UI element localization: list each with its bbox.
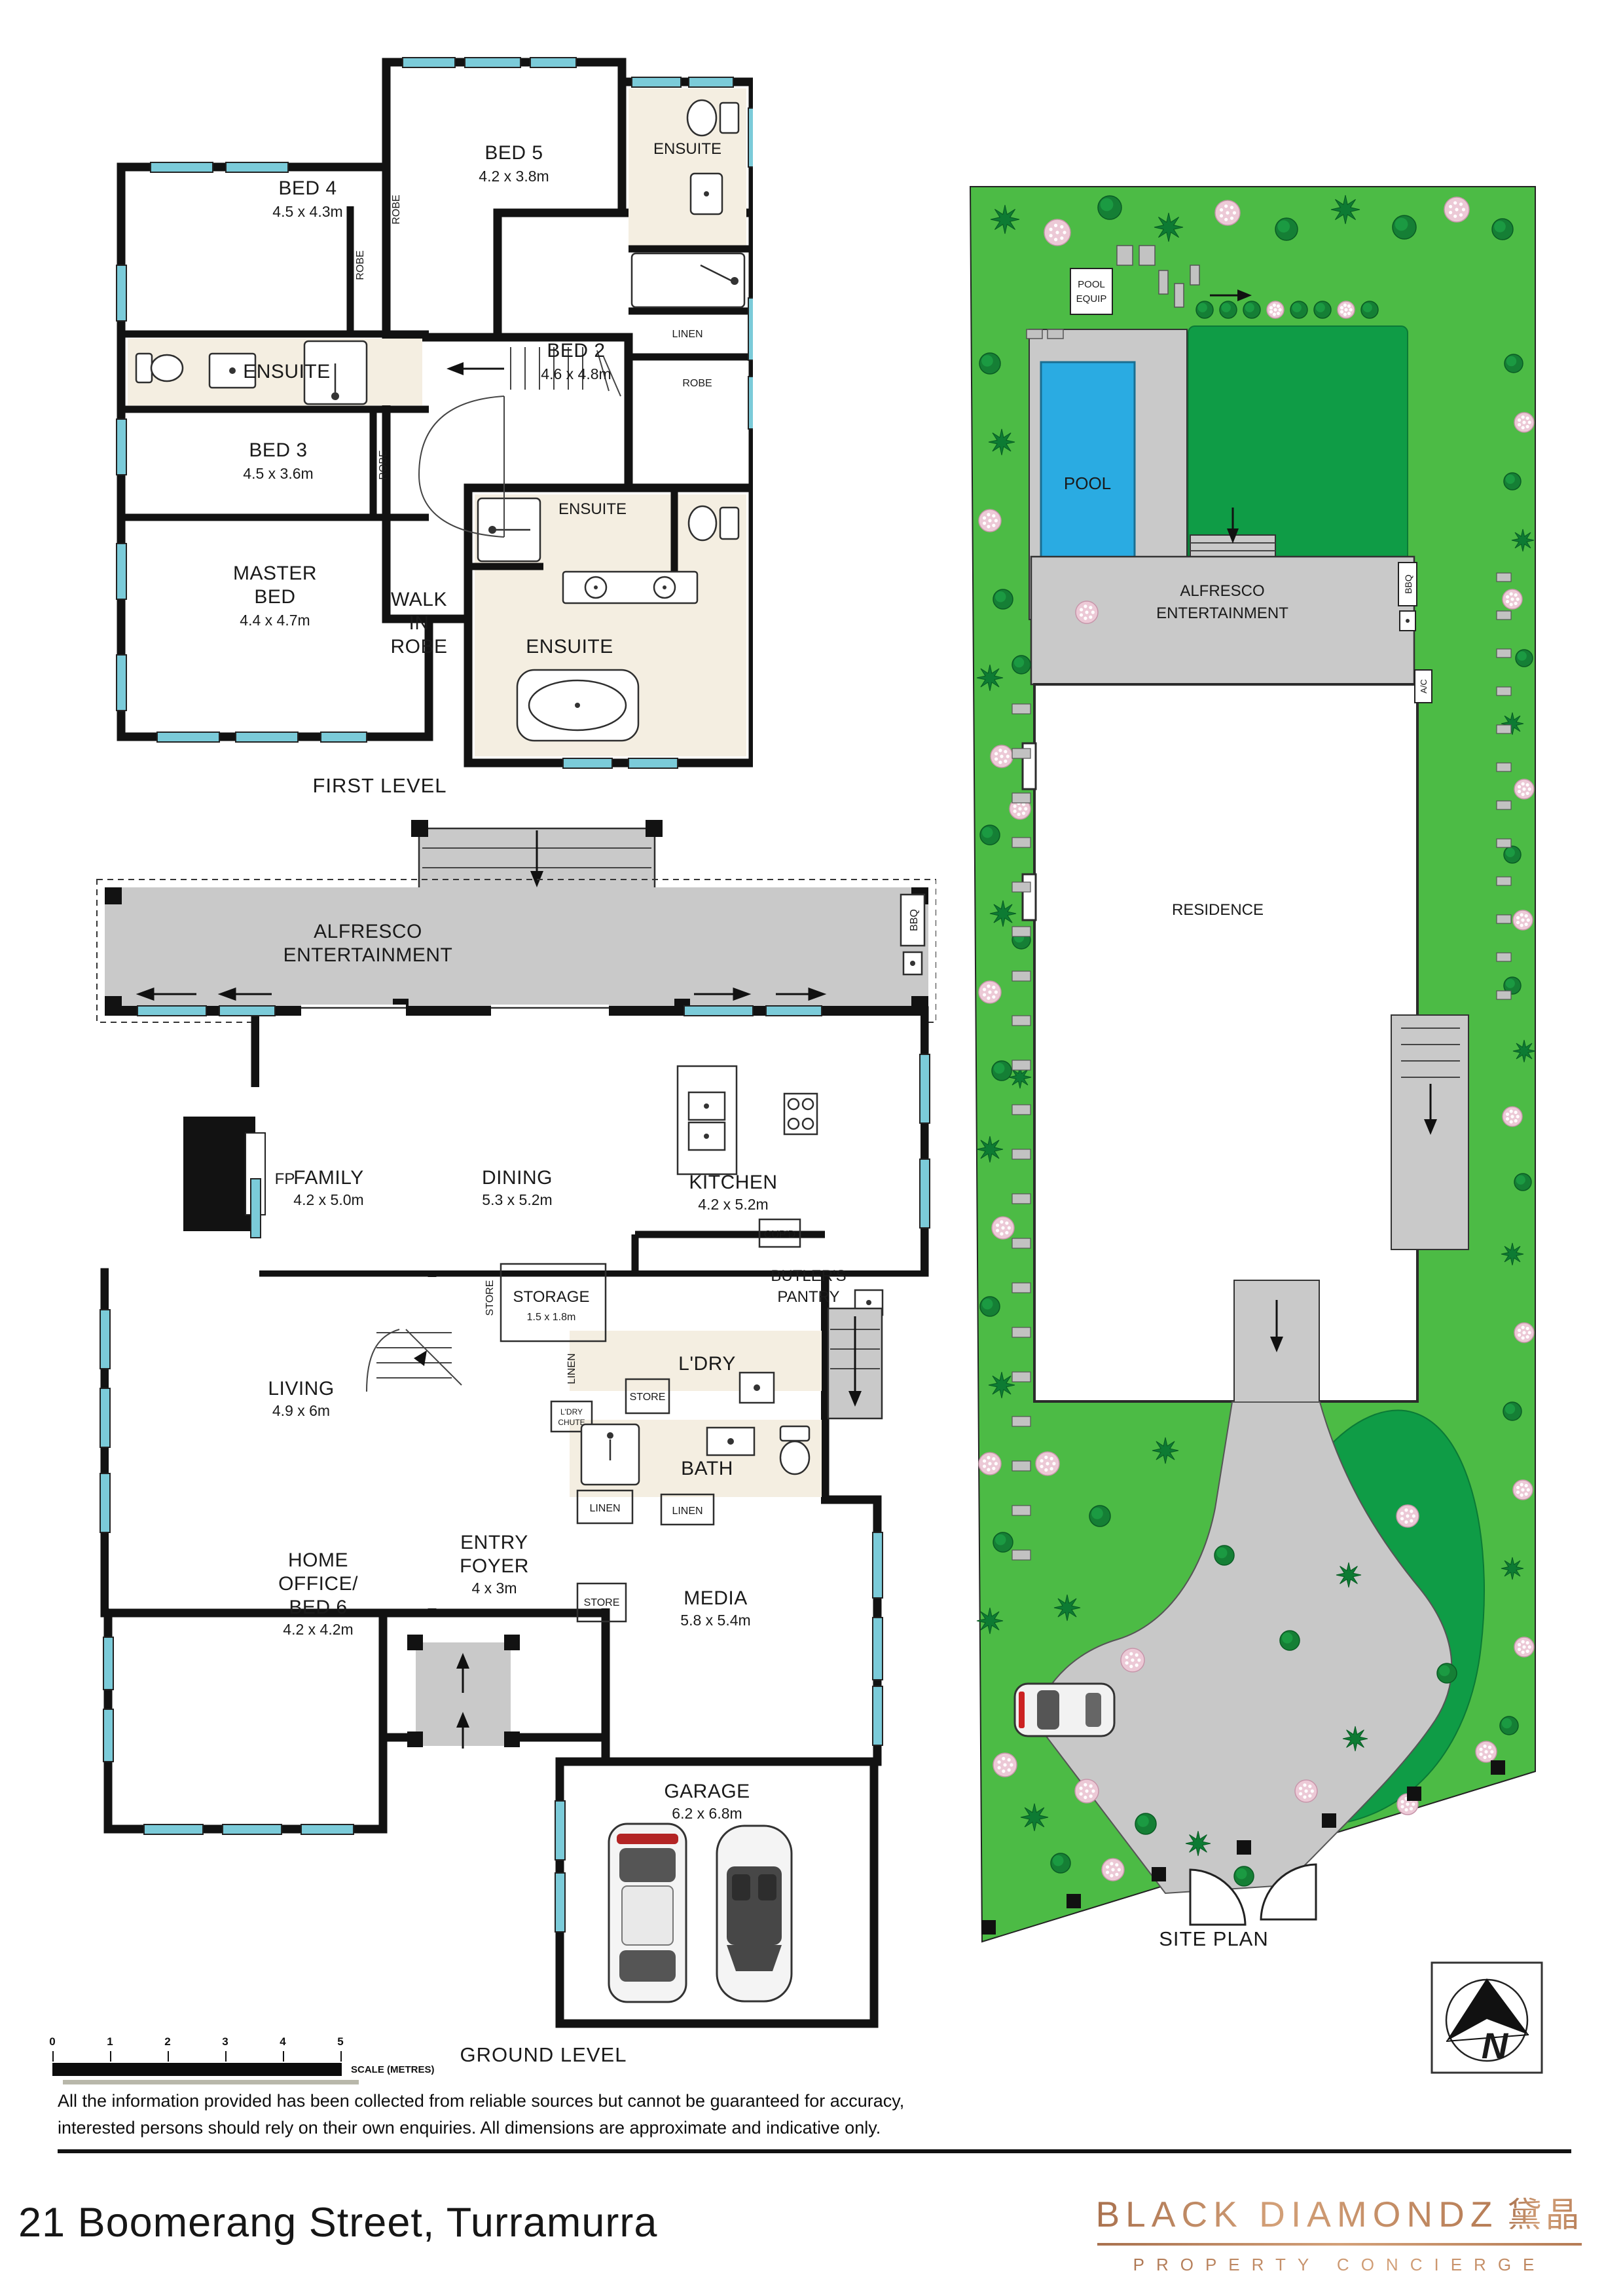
scale-units-label: SCALE (METRES) bbox=[351, 2064, 435, 2075]
cooktop-icon bbox=[784, 1094, 817, 1134]
room-label: BED bbox=[254, 586, 295, 608]
toilet-icon bbox=[780, 1426, 809, 1474]
room-label: BED 2 bbox=[547, 340, 605, 361]
scale-bar: 0 1 2 3 4 5 SCALE (METRES) bbox=[52, 2035, 458, 2081]
car-icon bbox=[1015, 1684, 1114, 1736]
footer-divider bbox=[58, 2149, 1571, 2153]
floorplan-page: BED 4 4.5 x 4.3m ROBE ROBE BED 5 4.2 x 3… bbox=[0, 0, 1623, 2296]
alfresco-label: ALFRESCO bbox=[314, 921, 422, 942]
store-label: STORE bbox=[484, 1280, 496, 1316]
shower-icon bbox=[581, 1424, 639, 1485]
room-label: MEDIA bbox=[684, 1587, 748, 1609]
ground-level-plan: ALFRESCO ENTERTAINMENT BBQ bbox=[85, 812, 936, 2069]
fp-label: FP bbox=[275, 1170, 295, 1188]
room-label: ENTRY bbox=[460, 1532, 528, 1553]
pool-equip-box bbox=[1070, 268, 1112, 314]
ensuite-label: ENSUITE bbox=[243, 361, 331, 382]
room-label: BED 6 bbox=[289, 1597, 347, 1618]
room-dims: 4.2 x 4.2m bbox=[283, 1621, 353, 1638]
first-level-title: FIRST LEVEL bbox=[312, 774, 447, 797]
butlers-label: BUTLER'S bbox=[771, 1267, 846, 1285]
room-label: DINING bbox=[482, 1167, 553, 1189]
site-plan-title: SITE PLAN bbox=[1159, 1927, 1269, 1950]
butlers-label: PANTRY bbox=[777, 1288, 839, 1306]
room-label: FOYER bbox=[460, 1555, 529, 1577]
pool-label: POOL bbox=[1064, 473, 1111, 493]
robe-label: ROBE bbox=[355, 250, 366, 280]
brand-tagline: PROPERTY CONCIERGE bbox=[1095, 2255, 1584, 2275]
pool-equip-label: POOL bbox=[1078, 279, 1105, 290]
toilet-icon bbox=[687, 100, 739, 136]
gl-homeoffice-block bbox=[108, 1613, 383, 1829]
room-label: HOME bbox=[288, 1549, 348, 1571]
store-label: STORE bbox=[630, 1392, 666, 1403]
room-dims: 4.2 x 5.2m bbox=[698, 1196, 768, 1213]
first-level-plan: BED 4 4.5 x 4.3m ROBE ROBE BED 5 4.2 x 3… bbox=[111, 56, 753, 802]
scale-tick: 4 bbox=[280, 2035, 285, 2048]
pool-equip-label: EQUIP bbox=[1076, 293, 1107, 305]
ldry-chute-label: L'DRY bbox=[560, 1407, 583, 1416]
robe-label: ROBE bbox=[682, 378, 712, 389]
basin-icon bbox=[691, 174, 722, 214]
ensuite-label: ENSUITE bbox=[558, 500, 627, 518]
room-label: WALK bbox=[391, 589, 447, 610]
site-alfresco-label: ALFRESCO bbox=[1180, 582, 1264, 600]
linen-label: LINEN bbox=[589, 1503, 620, 1514]
toilet-icon bbox=[136, 354, 183, 382]
cupd-label: CUP'D bbox=[764, 1229, 795, 1240]
shower-icon bbox=[632, 253, 744, 307]
room-label: GARAGE bbox=[664, 1781, 750, 1802]
site-plan: POOL POOL EQUIP ALFRESCO ENTERTAINMENT B… bbox=[949, 167, 1539, 1961]
site-ac-label: A/C bbox=[1419, 679, 1429, 694]
disclaimer-line1: All the information provided has been co… bbox=[58, 2088, 1105, 2115]
ldry-label: L'DRY bbox=[678, 1353, 736, 1375]
room-label: BED 5 bbox=[484, 142, 543, 164]
brand-cjk: 黛晶 bbox=[1507, 2196, 1583, 2234]
robe-label: ROBE bbox=[378, 450, 389, 479]
ground-level-title: GROUND LEVEL bbox=[460, 2043, 627, 2066]
linen-label: LINEN bbox=[566, 1353, 577, 1384]
shower-icon bbox=[478, 498, 540, 561]
car-icon bbox=[717, 1826, 792, 2001]
brand-logo: BLACK DIAMONDZ黛晶 PROPERTY CONCIERGE bbox=[1095, 2187, 1584, 2275]
linen-label: LINEN bbox=[672, 1506, 702, 1517]
scale-bar-line bbox=[52, 2063, 342, 2076]
room-dims: 5.3 x 5.2m bbox=[482, 1191, 552, 1208]
room-label: FAMILY bbox=[293, 1167, 363, 1189]
scale-tick: 2 bbox=[164, 2035, 170, 2048]
room-label: BED 3 bbox=[249, 439, 307, 461]
brand-name: BLACK DIAMONDZ bbox=[1096, 2194, 1499, 2234]
room-label: MASTER bbox=[233, 563, 317, 584]
room-label: KITCHEN bbox=[689, 1172, 777, 1193]
room-label: IN bbox=[409, 612, 429, 634]
site-residence bbox=[1034, 684, 1417, 1401]
disclaimer-line2: interested persons should rely on their … bbox=[58, 2115, 1105, 2141]
storage-label: STORAGE bbox=[513, 1288, 590, 1306]
site-alfresco-label: ENTERTAINMENT bbox=[1156, 604, 1288, 622]
room-dims: 5.8 x 5.4m bbox=[680, 1612, 750, 1629]
double-vanity-icon bbox=[563, 572, 697, 603]
scale-tick: 3 bbox=[222, 2035, 228, 2048]
robe-label: ROBE bbox=[391, 194, 402, 224]
north-label: N bbox=[1482, 2025, 1509, 2066]
room-dims: 4.5 x 4.3m bbox=[272, 203, 342, 220]
room-dims: 4.2 x 5.0m bbox=[293, 1191, 363, 1208]
fireplace bbox=[183, 1117, 255, 1231]
bath-label: BATH bbox=[681, 1458, 733, 1479]
store-label: STORE bbox=[584, 1597, 620, 1608]
room-dims: 4.4 x 4.7m bbox=[240, 612, 310, 629]
site-bbq-label: BBQ bbox=[1403, 574, 1413, 594]
bathtub-icon bbox=[517, 670, 638, 741]
room-dims: 4.5 x 3.6m bbox=[243, 465, 313, 482]
scale-tick: 0 bbox=[49, 2035, 55, 2048]
linen-label: LINEN bbox=[672, 329, 702, 340]
room-label: OFFICE/ bbox=[278, 1573, 358, 1595]
ensuite-label: ENSUITE bbox=[526, 636, 613, 657]
room-label: LIVING bbox=[268, 1378, 334, 1399]
room-dims: 4.9 x 6m bbox=[272, 1402, 330, 1419]
room-label: ROBE bbox=[390, 636, 447, 657]
car-icon bbox=[609, 1824, 686, 2002]
ensuite-label: ENSUITE bbox=[653, 140, 721, 158]
room-dims: 4.2 x 3.8m bbox=[479, 168, 549, 185]
north-arrow-icon: N bbox=[1431, 1961, 1543, 2074]
alfresco-label: ENTERTAINMENT bbox=[283, 944, 453, 966]
scale-tick: 1 bbox=[107, 2035, 113, 2048]
property-address: 21 Boomerang Street, Turramurra bbox=[18, 2199, 657, 2246]
brand-rule bbox=[1097, 2243, 1582, 2246]
kitchen-island bbox=[678, 1066, 737, 1174]
disclaimer: All the information provided has been co… bbox=[58, 2088, 1105, 2141]
room-dims: 4.6 x 4.8m bbox=[541, 365, 611, 382]
storage-dims: 1.5 x 1.8m bbox=[527, 1312, 576, 1323]
scale-tick: 5 bbox=[337, 2035, 343, 2048]
room-dims: 6.2 x 6.8m bbox=[672, 1805, 742, 1822]
residence-label: RESIDENCE bbox=[1172, 901, 1264, 919]
room-label: BED 4 bbox=[278, 177, 337, 199]
ldry-chute-label: CHUTE bbox=[558, 1418, 585, 1427]
bbq-label: BBQ bbox=[909, 909, 920, 931]
room-dims: 4 x 3m bbox=[471, 1580, 517, 1597]
